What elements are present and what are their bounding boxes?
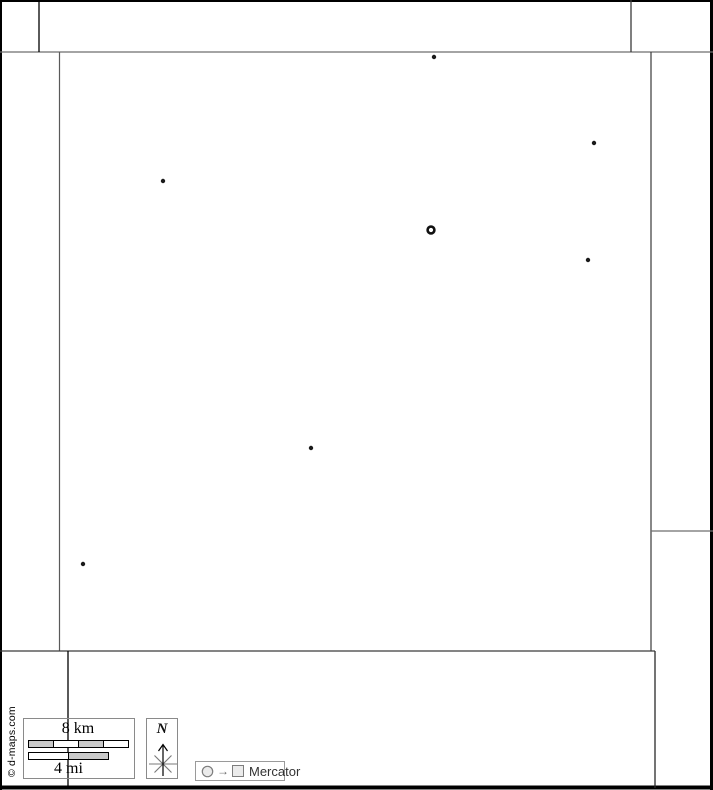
- scale-mi-label: 4 mi: [28, 760, 109, 778]
- city-dot-marker: [81, 562, 85, 566]
- globe-circle-icon: [201, 765, 214, 778]
- scale-segment: [68, 753, 108, 759]
- city-dot-marker: [161, 179, 165, 183]
- projection-legend: → Mercator: [195, 761, 285, 781]
- capital-city-marker: [428, 227, 435, 234]
- scale-segment: [78, 741, 103, 747]
- map-canvas: 8 km 4 mi N → Mercator © d-maps.com: [0, 0, 713, 790]
- map-boundaries-svg: [0, 0, 713, 790]
- compass-north-label: N: [147, 721, 177, 738]
- arrow-right-icon: →: [217, 765, 229, 777]
- city-markers: [81, 55, 596, 566]
- city-dot-marker: [586, 258, 590, 262]
- city-dot-marker: [592, 141, 596, 145]
- projection-name: Mercator: [247, 764, 300, 779]
- scale-bar: 8 km 4 mi: [23, 718, 135, 779]
- compass: N: [146, 718, 178, 779]
- city-dot-marker: [309, 446, 313, 450]
- scale-segment: [29, 753, 68, 759]
- boundary-lines: [0, 0, 713, 790]
- projected-square-icon: [232, 765, 244, 777]
- scale-bar-mi: [28, 752, 109, 760]
- copyright-label: © d-maps.com: [6, 706, 18, 777]
- scale-segment: [53, 741, 78, 747]
- compass-rose-icon: [147, 739, 179, 779]
- scale-bar-km: [28, 740, 129, 748]
- scale-km-label: 8 km: [28, 720, 128, 738]
- city-dot-marker: [432, 55, 436, 59]
- scale-segment: [103, 741, 128, 747]
- scale-segment: [29, 741, 53, 747]
